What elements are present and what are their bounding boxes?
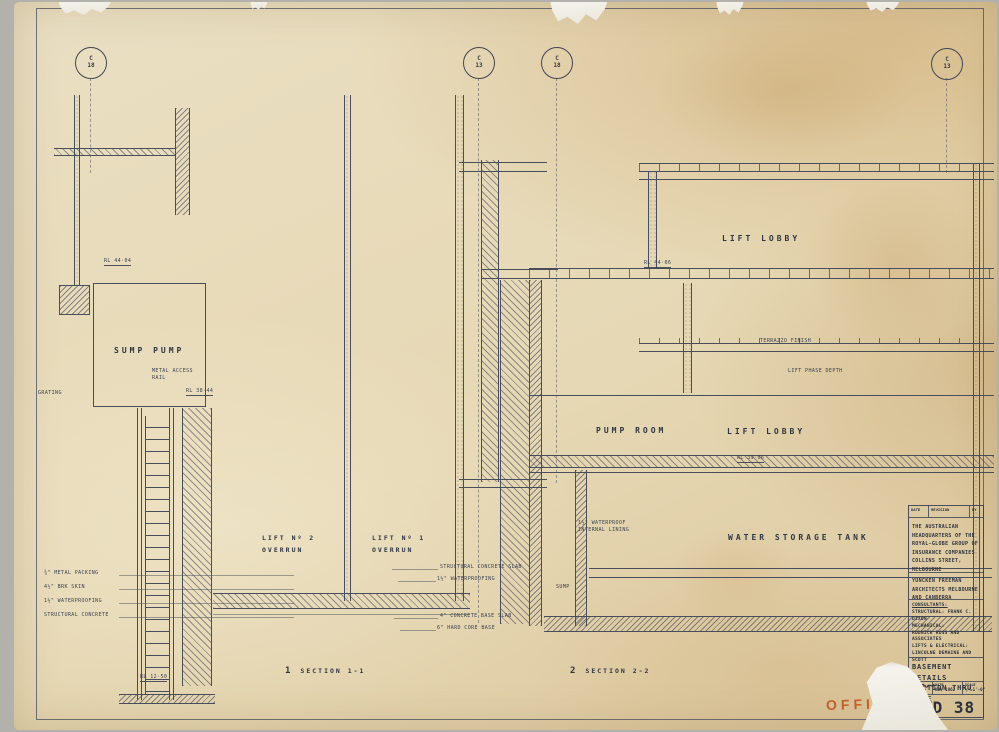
col-by: BY	[970, 506, 983, 517]
section-number: 2	[570, 666, 575, 676]
core-wall	[481, 160, 499, 482]
leader-line	[119, 603, 294, 604]
level-mark: RL 44·04	[104, 258, 131, 266]
room-label-lift-lobby-upper: LIFT LOBBY	[722, 234, 800, 243]
tank-wall	[575, 470, 587, 626]
core-slab	[459, 162, 547, 172]
grid-number: 13	[475, 63, 482, 70]
leader-line	[119, 589, 294, 590]
level-mark: RL 12·50	[140, 674, 167, 682]
grid-number: 13	[943, 64, 950, 71]
lift2-line1: LIFT Nº 2	[262, 532, 315, 544]
scanned-drawing-sheet: C 18 C 13 C 18 C 13	[0, 0, 999, 732]
base-slab	[213, 593, 470, 609]
note-terrazzo: TERRAZZO FINISH	[760, 338, 811, 345]
date-cell: DATE NOV 1962	[933, 682, 963, 694]
hatched-pier	[175, 108, 190, 215]
consultants-block: CONSULTANTS: STRUCTURAL: FRANK C. DIXON …	[909, 600, 983, 658]
scale-value: ½"=1'-0"	[965, 687, 981, 692]
grid-marker-c13-mid: C 13	[463, 47, 495, 79]
core-wall	[529, 280, 542, 626]
section-label: SECTION 1-1	[300, 667, 365, 675]
note-grating: GRATING	[38, 390, 62, 397]
leader-line	[398, 581, 436, 582]
level-mark: RL 44·06	[644, 260, 671, 268]
ceiling-line	[529, 395, 994, 396]
scale-cell: SCALE ½"=1'-0"	[963, 682, 983, 694]
lift2-line2: OVERRUN	[262, 544, 315, 556]
section-label: SECTION 2-2	[585, 667, 650, 675]
grid-marker-c13-right: C 13	[931, 48, 963, 80]
shaft-wall	[137, 408, 142, 700]
note-sump: SUMP	[556, 584, 570, 591]
drawing-title: BASEMENT DETAILS SECTION THRU CORE	[909, 658, 983, 682]
leader-line	[392, 569, 438, 570]
lift1-line1: LIFT Nº 1	[372, 532, 425, 544]
centerline	[556, 78, 557, 483]
pit-slab	[119, 694, 215, 704]
room-label-lift-lobby-mid: LIFT LOBBY	[727, 427, 805, 436]
hatched-wall	[182, 408, 212, 686]
grid-number: 18	[553, 63, 560, 70]
structural-consultant: STRUCTURAL: FRANK C. DIXON	[912, 610, 980, 624]
title-line1: BASEMENT DETAILS	[912, 662, 980, 683]
note-lift-phase: LIFT PHASE DEPTH	[788, 368, 843, 375]
revision-header-row: DATE REVISION BY	[909, 506, 983, 518]
col-date: DATE	[909, 506, 929, 517]
floor-line	[529, 472, 994, 473]
date-value: NOV 1962	[935, 687, 960, 692]
centerline	[478, 78, 479, 623]
note-base-slab: 4" CONCRETE BASE SLAB	[440, 613, 512, 620]
leader-line	[119, 575, 294, 576]
room-label-sump-pump: SUMP PUMP	[114, 346, 184, 355]
centerline	[946, 78, 947, 173]
section-title-2: 2 SECTION 2-2	[570, 666, 650, 676]
hatched-block	[59, 285, 90, 315]
section-title-1: 1 SECTION 1-1	[285, 666, 365, 676]
col-revision: REVISION	[929, 506, 970, 517]
mechanical-label: MECHANICAL:	[912, 624, 980, 631]
wall-line	[344, 95, 351, 601]
level-mark: RL 38·44	[186, 388, 213, 396]
leader-line	[394, 618, 438, 619]
note-metal-rail: METAL ACCESS RAIL	[152, 368, 196, 382]
project-name: THE AUSTRALIAN HEADQUARTERS OF THE ROYAL…	[909, 518, 983, 573]
architects-name: YUNCKEN FREEMAN ARCHITECTS MELBOURNE AND…	[909, 573, 983, 600]
note-brick-skin: 4½" BRK SKIN	[44, 584, 85, 591]
consultants-label: CONSULTANTS:	[912, 603, 980, 610]
leader-line	[119, 617, 294, 618]
note-structural-slab: STRUCTURAL CONCRETE SLAB	[440, 564, 522, 571]
floor-slab	[529, 268, 994, 279]
room-label-water-tank: WATER STORAGE TANK	[728, 533, 869, 542]
note-packing: ¾" METAL PACKING	[44, 570, 99, 577]
slab-line	[54, 148, 176, 156]
grid-marker-c18-mid: C 18	[541, 47, 573, 79]
mechanical-consultant: RUDNICK ROSS AND ASSOCIATES	[912, 631, 980, 645]
note-waterproofing: 1½" WATERPROOFING	[44, 598, 102, 605]
grid-number: 18	[87, 63, 94, 70]
blueprint-paper: C 18 C 13 C 18 C 13	[14, 2, 997, 730]
room-label-pump-room: PUMP ROOM	[596, 426, 666, 435]
grid-marker-c18-left: C 18	[75, 47, 107, 79]
leader-line	[400, 630, 436, 631]
section-number: 1	[285, 666, 290, 676]
note-internal-lining: 1½" WATERPROOF INTERNAL LINING	[578, 520, 644, 534]
lift1-line2: OVERRUN	[372, 544, 425, 556]
level-mark: RL 39·06	[737, 455, 764, 463]
note-structural-concrete: STRUCTURAL CONCRETE	[44, 612, 109, 619]
ceiling-line	[639, 179, 994, 180]
shaft-wall	[169, 408, 174, 700]
wall-line	[74, 95, 80, 285]
shaft-ladder	[145, 416, 170, 694]
note-waterproofing2: 1½" WATERPROOFING	[437, 576, 495, 583]
roof-slab	[639, 163, 994, 172]
note-hardcore: 6" HARD CORE BASE	[437, 625, 495, 632]
wall-line	[648, 171, 657, 269]
room-label-lift2-overrun: LIFT Nº 2 OVERRUN	[262, 532, 315, 557]
centerline	[90, 78, 91, 173]
stair-slab	[639, 343, 994, 352]
room-label-lift1-overrun: LIFT Nº 1 OVERRUN	[372, 532, 425, 557]
core-wall	[500, 280, 530, 624]
ground-line	[213, 614, 470, 615]
